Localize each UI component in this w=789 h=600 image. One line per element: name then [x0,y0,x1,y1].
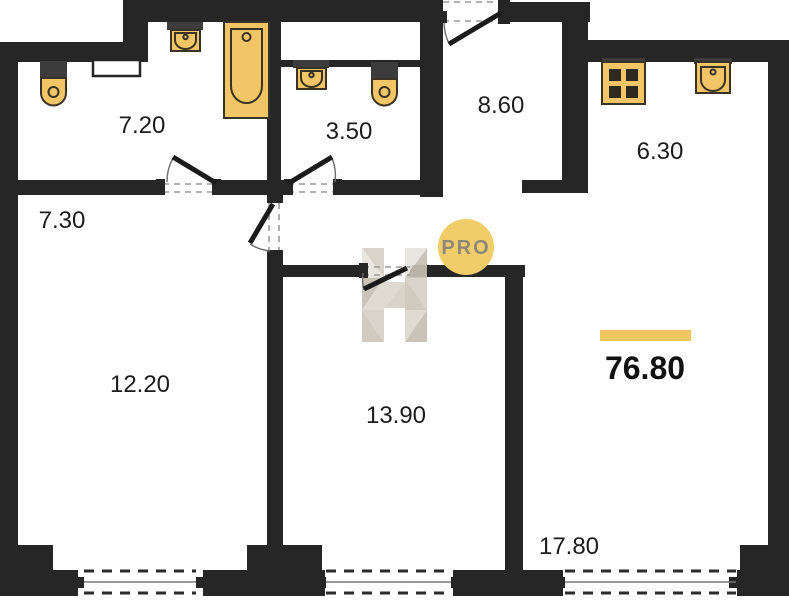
room-area-label-kitchen: 6.30 [637,138,684,165]
window-nub [196,577,205,588]
entrance-door [437,2,501,44]
door-jamb [437,11,447,23]
room-area-label-living: 17.80 [539,533,599,560]
room-area-label-bathroom2: 3.50 [326,118,373,145]
door-leaf [173,157,216,183]
wall-top [123,0,443,22]
toilet-bowl [41,78,66,105]
toilet-tank [371,62,398,79]
sink-mount [167,22,203,30]
wall-hall-kitchen [562,2,588,193]
floor-plan-drawing: PRO [0,0,789,600]
wall-bottom-c [453,570,563,596]
toilet-icon [40,61,67,105]
door-leaf [449,13,501,44]
watermark-logo [362,248,427,342]
door-arc [332,158,335,182]
wall-pier-left [0,545,53,571]
door-arc [444,23,449,44]
bathroom2-door [284,157,342,195]
room-area-label-hallway: 8.60 [478,92,525,119]
floor-plan-canvas: PRO [0,0,789,600]
wall-niche [93,60,140,76]
wall-hall-kitchen-foot [522,180,588,193]
window-nub [556,577,565,588]
door-leaf [289,157,332,183]
room-area-label-bathroom1: 7.20 [119,112,166,139]
room-area-label-room1: 12.20 [110,371,170,398]
toilet-icon [371,62,398,106]
sink-icon [167,22,203,51]
wall-room-divider-post-top [267,195,283,203]
sink-icon [293,60,329,89]
door-jamb [156,179,165,195]
door-jamb [333,179,342,195]
wall-bottom-b [203,570,325,596]
wall-hall-room2-a [283,265,363,277]
bathroom1-door [156,157,221,195]
total-area-accent-bar [600,330,691,341]
total-area-value: 76.80 [605,350,685,386]
room-area-label-corridor: 7.30 [39,207,86,234]
stove-icon [602,58,645,104]
bathtub-icon [224,22,269,118]
wall-pier-middle [247,545,322,571]
stove-burner [626,86,638,98]
total-area: 76.80 [600,330,691,386]
windows [84,571,736,593]
room1-door [250,203,279,251]
wall-right [768,40,789,596]
wall-bath2-hall [420,0,443,197]
stove-burner [609,69,621,81]
kitchen-sink-icon [694,58,732,93]
stove-burner [626,69,638,81]
wall-room2-living [505,268,523,573]
toilet-bowl [372,79,397,106]
wall-left [0,42,18,596]
wall-bottom-d [737,570,789,596]
window-nub [75,577,84,588]
wall-bath-bottom-b [217,180,288,195]
wall-bath-bottom-c [337,180,420,195]
room-area-label-room2: 13.90 [366,402,426,429]
pro-badge: PRO [438,219,494,275]
stove-burner [609,86,621,98]
window-nub [317,577,326,588]
wall-room-divider [267,258,283,545]
window [326,571,451,593]
wall-bottom-a [0,570,78,596]
wall-bath-bottom-a [18,180,163,195]
door-arc [167,158,173,182]
window [84,571,196,593]
pro-badge-text: PRO [441,237,490,259]
sink-mount [293,60,329,68]
door-jamb [359,263,368,278]
stove-body [602,62,645,104]
window-nub [451,577,460,588]
window [565,571,736,593]
door-arc [250,244,270,251]
wall-pier-right [740,545,789,571]
toilet-tank [40,61,67,78]
